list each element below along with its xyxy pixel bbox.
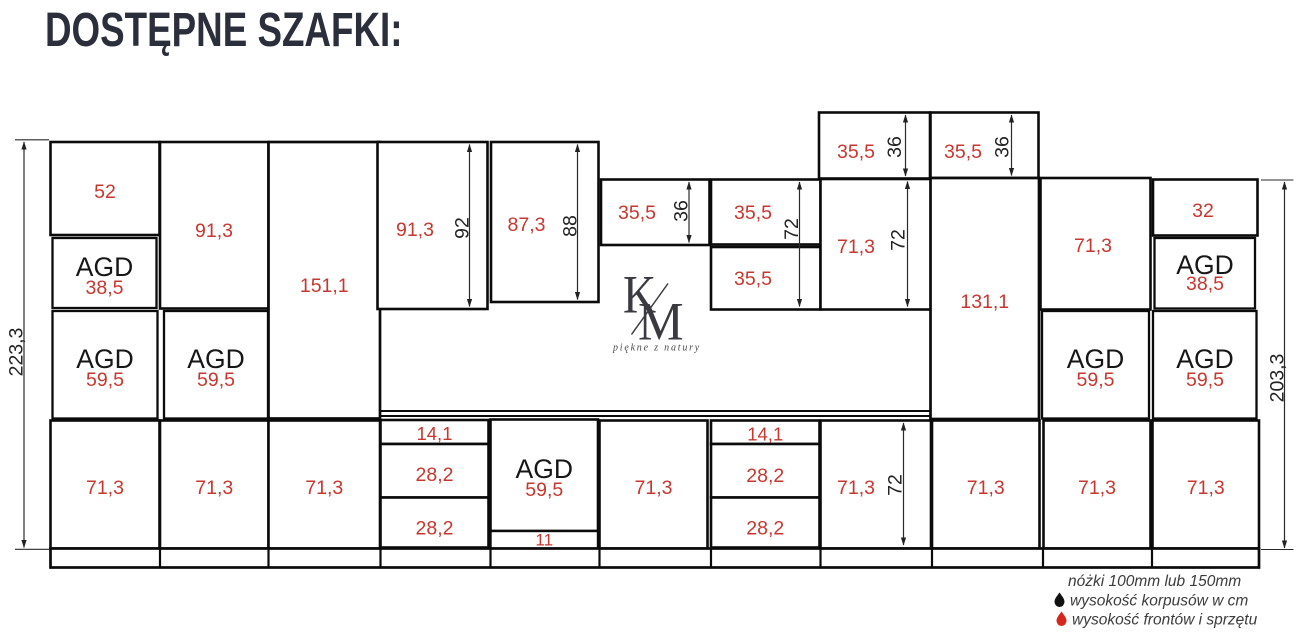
svg-text:36: 36: [992, 136, 1014, 158]
svg-text:piękne z natury: piękne z natury: [612, 343, 701, 354]
svg-text:38,5: 38,5: [86, 277, 124, 299]
svg-text:38,5: 38,5: [1186, 273, 1224, 295]
svg-text:wysokość frontów i sprzętu: wysokość frontów i sprzętu: [1072, 612, 1258, 629]
svg-text:223,3: 223,3: [6, 328, 28, 377]
svg-text:59,5: 59,5: [86, 369, 124, 391]
svg-text:wysokość korpusów w cm: wysokość korpusów w cm: [1070, 593, 1248, 610]
svg-text:59,5: 59,5: [1186, 369, 1224, 391]
svg-text:71,3: 71,3: [1074, 235, 1112, 257]
svg-text:59,5: 59,5: [525, 479, 563, 501]
svg-text:nóżki 100mm lub 150mm: nóżki 100mm lub 150mm: [1068, 573, 1241, 590]
svg-text:11: 11: [535, 531, 553, 550]
svg-text:DOSTĘPNE SZAFKI:: DOSTĘPNE SZAFKI:: [45, 3, 402, 57]
svg-text:88: 88: [560, 215, 582, 237]
svg-text:14,1: 14,1: [416, 423, 452, 444]
svg-text:35,5: 35,5: [618, 202, 656, 224]
svg-text:91,3: 91,3: [195, 220, 233, 242]
svg-text:71,3: 71,3: [1078, 477, 1116, 499]
svg-text:203,3: 203,3: [1267, 354, 1289, 403]
svg-text:92: 92: [452, 217, 474, 239]
svg-text:28,2: 28,2: [746, 465, 784, 487]
svg-text:72: 72: [888, 229, 910, 251]
svg-text:72: 72: [781, 218, 803, 240]
svg-text:131,1: 131,1: [960, 291, 1009, 313]
svg-text:36: 36: [884, 136, 906, 158]
svg-text:35,5: 35,5: [837, 141, 875, 163]
svg-text:28,2: 28,2: [416, 464, 454, 486]
svg-text:87,3: 87,3: [508, 214, 546, 236]
svg-text:14,1: 14,1: [747, 424, 783, 445]
svg-text:28,2: 28,2: [416, 518, 454, 540]
svg-text:71,3: 71,3: [967, 477, 1005, 499]
svg-text:71,3: 71,3: [837, 236, 875, 258]
svg-text:59,5: 59,5: [197, 369, 235, 391]
svg-text:72: 72: [885, 474, 907, 496]
svg-text:71,3: 71,3: [305, 477, 343, 499]
svg-text:71,3: 71,3: [837, 477, 875, 499]
svg-text:52: 52: [94, 181, 116, 203]
svg-text:71,3: 71,3: [86, 477, 124, 499]
svg-text:35,5: 35,5: [944, 141, 982, 163]
svg-text:71,3: 71,3: [635, 477, 673, 499]
svg-text:71,3: 71,3: [195, 477, 233, 499]
svg-text:32: 32: [1192, 200, 1214, 222]
svg-text:35,5: 35,5: [734, 202, 772, 224]
svg-text:36: 36: [671, 200, 693, 222]
svg-text:28,2: 28,2: [746, 518, 784, 540]
svg-text:59,5: 59,5: [1077, 369, 1115, 391]
svg-text:71,3: 71,3: [1187, 477, 1225, 499]
svg-text:35,5: 35,5: [734, 268, 772, 290]
svg-text:91,3: 91,3: [396, 219, 434, 241]
svg-text:151,1: 151,1: [300, 275, 349, 297]
